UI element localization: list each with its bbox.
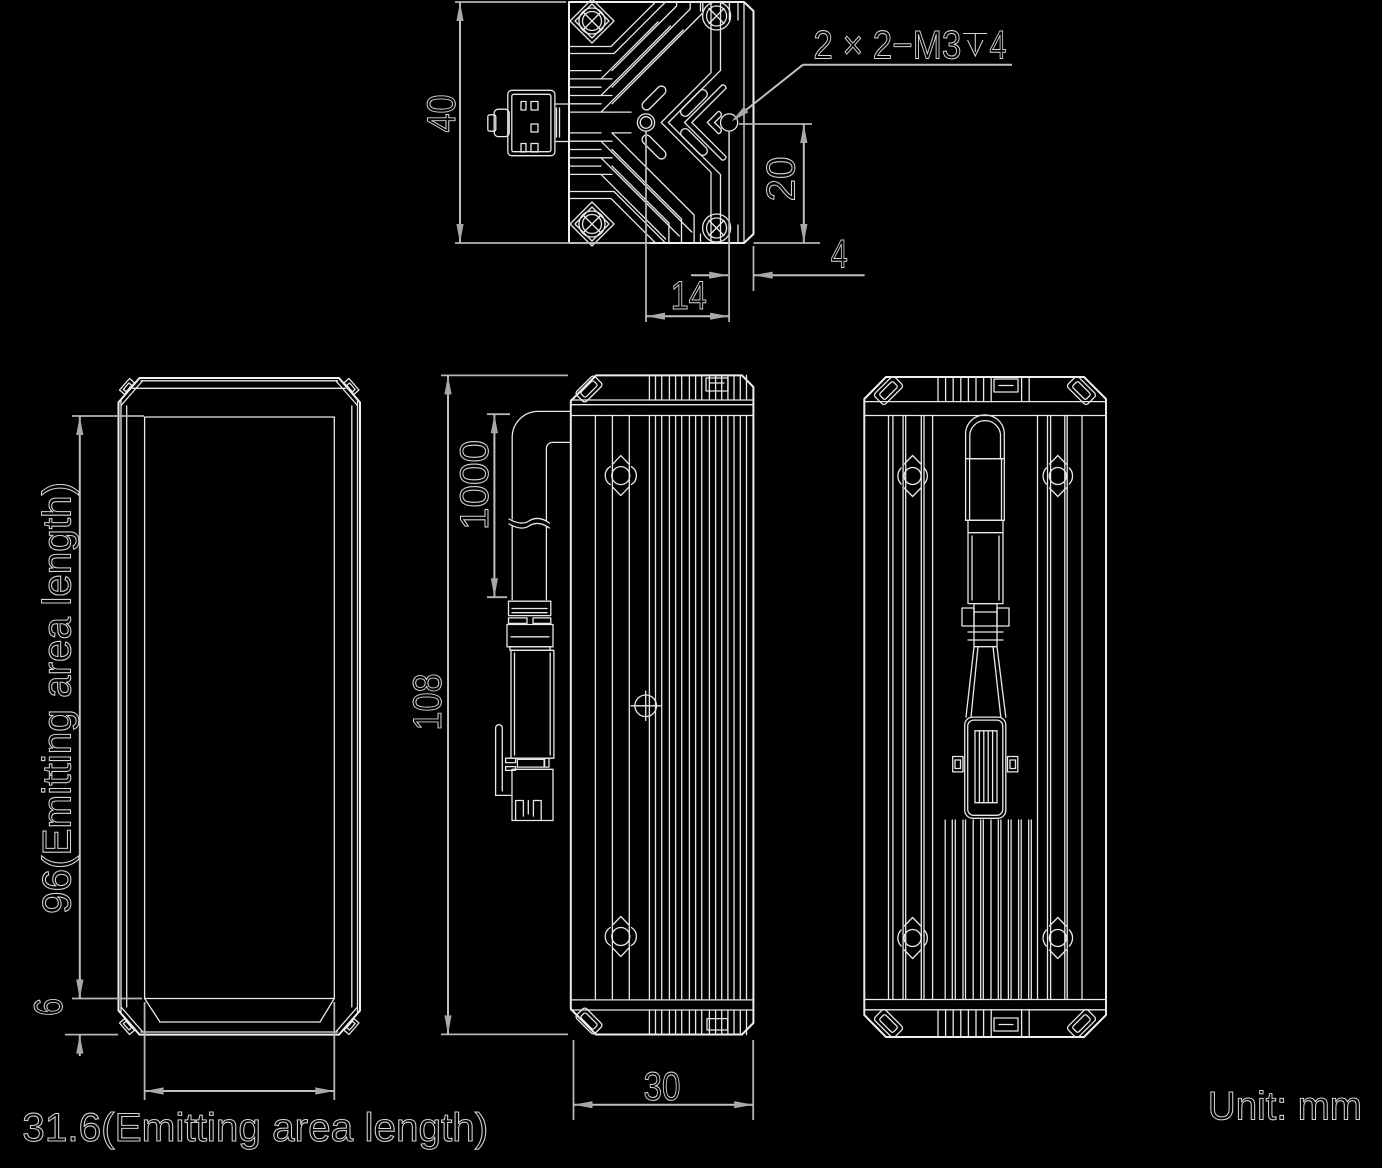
svg-text:2 × 2−M3: 2 × 2−M3 [813,23,961,67]
svg-text:1000: 1000 [453,440,497,530]
svg-text:20: 20 [760,157,804,202]
svg-text:4: 4 [831,233,848,277]
svg-text:Unit: mm: Unit: mm [1208,1085,1362,1129]
svg-text:14: 14 [671,274,707,318]
svg-text:4: 4 [990,23,1007,67]
svg-text:30: 30 [644,1065,681,1109]
svg-text:108: 108 [406,674,450,731]
svg-text:31.6(Emitting area length): 31.6(Emitting area length) [22,1106,488,1150]
svg-text:96(Emitting area length): 96(Emitting area length) [36,482,80,914]
svg-text:40: 40 [420,95,464,133]
svg-text:6: 6 [27,998,71,1016]
